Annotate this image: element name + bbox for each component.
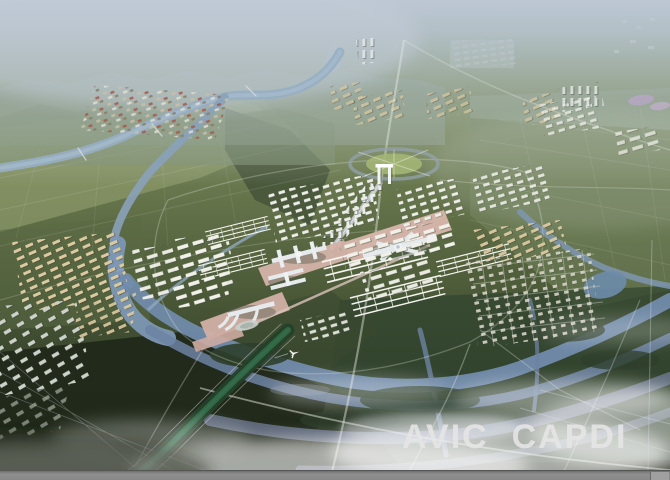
aerial-rendering: AVIC CAPDI: [0, 0, 670, 480]
aerial-canvas: AVIC CAPDI: [0, 0, 670, 480]
bottom-scrollbar[interactable]: [0, 470, 670, 480]
watermark: AVIC CAPDI: [402, 418, 627, 456]
scrollbar-thumb[interactable]: [650, 472, 669, 480]
